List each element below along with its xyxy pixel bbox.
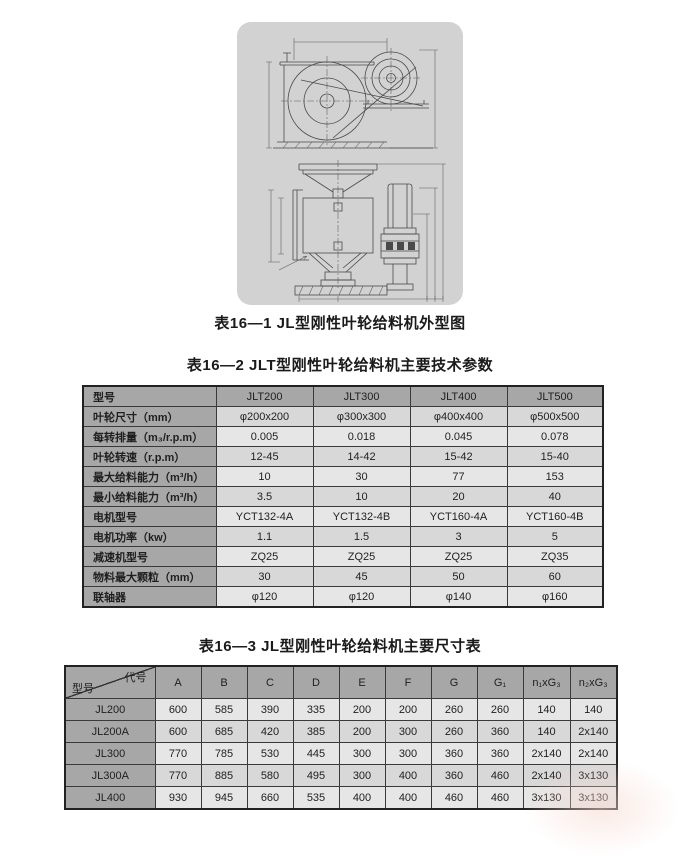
t2-row-label: 电机型号 [83, 507, 216, 527]
t2-cell: 10 [313, 487, 410, 507]
t3-cell: 460 [431, 787, 477, 810]
t2-cell: YCT160-4B [507, 507, 603, 527]
t2-cell: φ140 [410, 587, 507, 608]
t2-cell: 50 [410, 567, 507, 587]
t2-cell: ZQ25 [410, 547, 507, 567]
t2-column-header: JLT200 [216, 386, 313, 407]
t2-cell: 15-42 [410, 447, 507, 467]
t2-cell: φ300x300 [313, 407, 410, 427]
t3-column-header: E [339, 666, 385, 699]
t3-column-header: B [201, 666, 247, 699]
t2-row-label: 物料最大颗粒（mm） [83, 567, 216, 587]
t2-cell: 0.045 [410, 427, 507, 447]
t3-cell: 400 [385, 787, 431, 810]
t2-row-label: 联轴器 [83, 587, 216, 608]
t2-row: 减速机型号ZQ25ZQ25ZQ25ZQ35 [83, 547, 603, 567]
t2-cell: 1.1 [216, 527, 313, 547]
t3-cell: 460 [477, 765, 523, 787]
corner-label-code: 代号 [125, 669, 147, 685]
t2-cell: ZQ35 [507, 547, 603, 567]
t3-column-header: n₂xG₃ [570, 666, 617, 699]
t3-cell: 530 [247, 743, 293, 765]
t2-cell: 30 [313, 467, 410, 487]
t3-model-cell: JL200 [65, 699, 155, 721]
t2-cell: YCT132-4A [216, 507, 313, 527]
t2-row-label: 叶轮尺寸（mm） [83, 407, 216, 427]
t2-cell: 3.5 [216, 487, 313, 507]
t3-column-header: G [431, 666, 477, 699]
t3-cell: 390 [247, 699, 293, 721]
t3-cell: 2x140 [523, 765, 570, 787]
t2-row-label: 最小给料能力（m³/h） [83, 487, 216, 507]
t3-cell: 585 [201, 699, 247, 721]
t3-cell: 685 [201, 721, 247, 743]
t2-cell: ZQ25 [216, 547, 313, 567]
t3-cell: 945 [201, 787, 247, 810]
t2-cell: 12-45 [216, 447, 313, 467]
t3-column-header: n₁xG₃ [523, 666, 570, 699]
t2-cell: φ160 [507, 587, 603, 608]
t3-cell: 335 [293, 699, 339, 721]
t3-cell: 420 [247, 721, 293, 743]
t2-cell: 20 [410, 487, 507, 507]
figure-caption: 表16—1 JL型刚性叶轮给料机外型图 [0, 312, 680, 333]
t3-cell: 2x140 [570, 721, 617, 743]
t3-column-header: C [247, 666, 293, 699]
t3-cell: 495 [293, 765, 339, 787]
t3-row: JL200600585390335200200260260140140 [65, 699, 617, 721]
feeder-outline-drawing [237, 22, 463, 305]
t3-cell: 535 [293, 787, 339, 810]
t2-cell: 60 [507, 567, 603, 587]
t2-cell: 14-42 [313, 447, 410, 467]
t3-cell: 660 [247, 787, 293, 810]
t2-row: 叶轮尺寸（mm）φ200x200φ300x300φ400x400φ500x500 [83, 407, 603, 427]
t3-model-cell: JL300A [65, 765, 155, 787]
table2-caption: 表16—2 JLT型刚性叶轮给料机主要技术参数 [0, 354, 680, 375]
t2-column-header: JLT300 [313, 386, 410, 407]
t2-cell: φ120 [216, 587, 313, 608]
t2-cell: 77 [410, 467, 507, 487]
figure-panel [237, 22, 463, 305]
t3-cell: 360 [477, 743, 523, 765]
t3-cell: 140 [523, 721, 570, 743]
t3-cell: 400 [385, 765, 431, 787]
t2-cell: 0.078 [507, 427, 603, 447]
t3-cell: 445 [293, 743, 339, 765]
t2-row-label: 减速机型号 [83, 547, 216, 567]
t3-cell: 140 [570, 699, 617, 721]
t3-cell: 885 [201, 765, 247, 787]
t2-row-label: 电机功率（kw） [83, 527, 216, 547]
t3-cell: 200 [385, 699, 431, 721]
t2-row: 叶轮转速（r.p.m）12-4514-4215-4215-40 [83, 447, 603, 467]
t3-cell: 260 [477, 699, 523, 721]
t3-cell: 300 [339, 765, 385, 787]
t3-cell: 2x140 [570, 743, 617, 765]
t3-cell: 300 [385, 743, 431, 765]
t2-column-header: JLT400 [410, 386, 507, 407]
t2-cell: 30 [216, 567, 313, 587]
t2-cell: 10 [216, 467, 313, 487]
t3-cell: 580 [247, 765, 293, 787]
t2-row-label: 型号 [83, 386, 216, 407]
t2-row: 电机型号YCT132-4AYCT132-4BYCT160-4AYCT160-4B [83, 507, 603, 527]
t2-row-label: 叶轮转速（r.p.m） [83, 447, 216, 467]
t3-cell: 260 [431, 699, 477, 721]
corner-label-model: 型号 [72, 680, 94, 696]
t3-cell: 2x140 [523, 743, 570, 765]
dimensions-table: 代号 型号 ABCDEFGG₁n₁xG₃n₂xG₃ JL200600585390… [64, 665, 618, 810]
t3-cell: 140 [523, 699, 570, 721]
t3-cell: 785 [201, 743, 247, 765]
t3-header-row: 代号 型号 ABCDEFGG₁n₁xG₃n₂xG₃ [65, 666, 617, 699]
t2-cell: 3 [410, 527, 507, 547]
t2-row-label: 每转排量（m₃/r.p.m） [83, 427, 216, 447]
t3-cell: 360 [431, 743, 477, 765]
t3-cell: 770 [155, 743, 201, 765]
t2-row: 物料最大颗粒（mm）30455060 [83, 567, 603, 587]
t3-cell: 3x130 [570, 765, 617, 787]
table3-caption: 表16—3 JL型刚性叶轮给料机主要尺寸表 [0, 635, 680, 656]
t3-model-cell: JL200A [65, 721, 155, 743]
t2-cell: φ400x400 [410, 407, 507, 427]
t2-cell: φ500x500 [507, 407, 603, 427]
t2-cell: 45 [313, 567, 410, 587]
t2-cell: φ200x200 [216, 407, 313, 427]
t2-cell: 40 [507, 487, 603, 507]
t3-model-cell: JL300 [65, 743, 155, 765]
t2-row-label: 最大给料能力（m³/h） [83, 467, 216, 487]
t2-row: 电机功率（kw）1.11.535 [83, 527, 603, 547]
t3-cell: 300 [385, 721, 431, 743]
t3-model-cell: JL400 [65, 787, 155, 810]
t2-row: 最大给料能力（m³/h）103077153 [83, 467, 603, 487]
t2-row: 最小给料能力（m³/h）3.5102040 [83, 487, 603, 507]
t3-cell: 385 [293, 721, 339, 743]
t3-cell: 260 [431, 721, 477, 743]
t2-cell: ZQ25 [313, 547, 410, 567]
t3-cell: 3x130 [570, 787, 617, 810]
t3-cell: 600 [155, 699, 201, 721]
t2-cell: 1.5 [313, 527, 410, 547]
t3-row: JL200A6006854203852003002603601402x140 [65, 721, 617, 743]
t3-column-header: F [385, 666, 431, 699]
t3-column-header: G₁ [477, 666, 523, 699]
t3-cell: 200 [339, 699, 385, 721]
t2-row: 联轴器φ120φ120φ140φ160 [83, 587, 603, 608]
t3-cell: 460 [477, 787, 523, 810]
t3-column-header: A [155, 666, 201, 699]
t3-row: JL4009309456605354004004604603x1303x130 [65, 787, 617, 810]
t3-cell: 360 [431, 765, 477, 787]
t2-cell: φ120 [313, 587, 410, 608]
t2-cell: YCT132-4B [313, 507, 410, 527]
t2-cell: 0.018 [313, 427, 410, 447]
t3-cell: 400 [339, 787, 385, 810]
t2-column-header: JLT500 [507, 386, 603, 407]
t3-cell: 770 [155, 765, 201, 787]
t2-cell: 153 [507, 467, 603, 487]
t2-cell: YCT160-4A [410, 507, 507, 527]
tech-params-table: 型号JLT200JLT300JLT400JLT500叶轮尺寸（mm）φ200x2… [82, 385, 604, 608]
t2-row: 每转排量（m₃/r.p.m）0.0050.0180.0450.078 [83, 427, 603, 447]
t3-cell: 600 [155, 721, 201, 743]
t2-cell: 0.005 [216, 427, 313, 447]
t3-cell: 930 [155, 787, 201, 810]
t3-cell: 360 [477, 721, 523, 743]
t3-cell: 300 [339, 743, 385, 765]
t2-header-row: 型号JLT200JLT300JLT400JLT500 [83, 386, 603, 407]
t3-row: JL3007707855304453003003603602x1402x140 [65, 743, 617, 765]
t3-cell: 3x130 [523, 787, 570, 810]
t3-cell: 200 [339, 721, 385, 743]
t3-row: JL300A7708855804953004003604602x1403x130 [65, 765, 617, 787]
t2-cell: 15-40 [507, 447, 603, 467]
t2-cell: 5 [507, 527, 603, 547]
t3-column-header: D [293, 666, 339, 699]
corner-header-cell: 代号 型号 [65, 666, 155, 699]
